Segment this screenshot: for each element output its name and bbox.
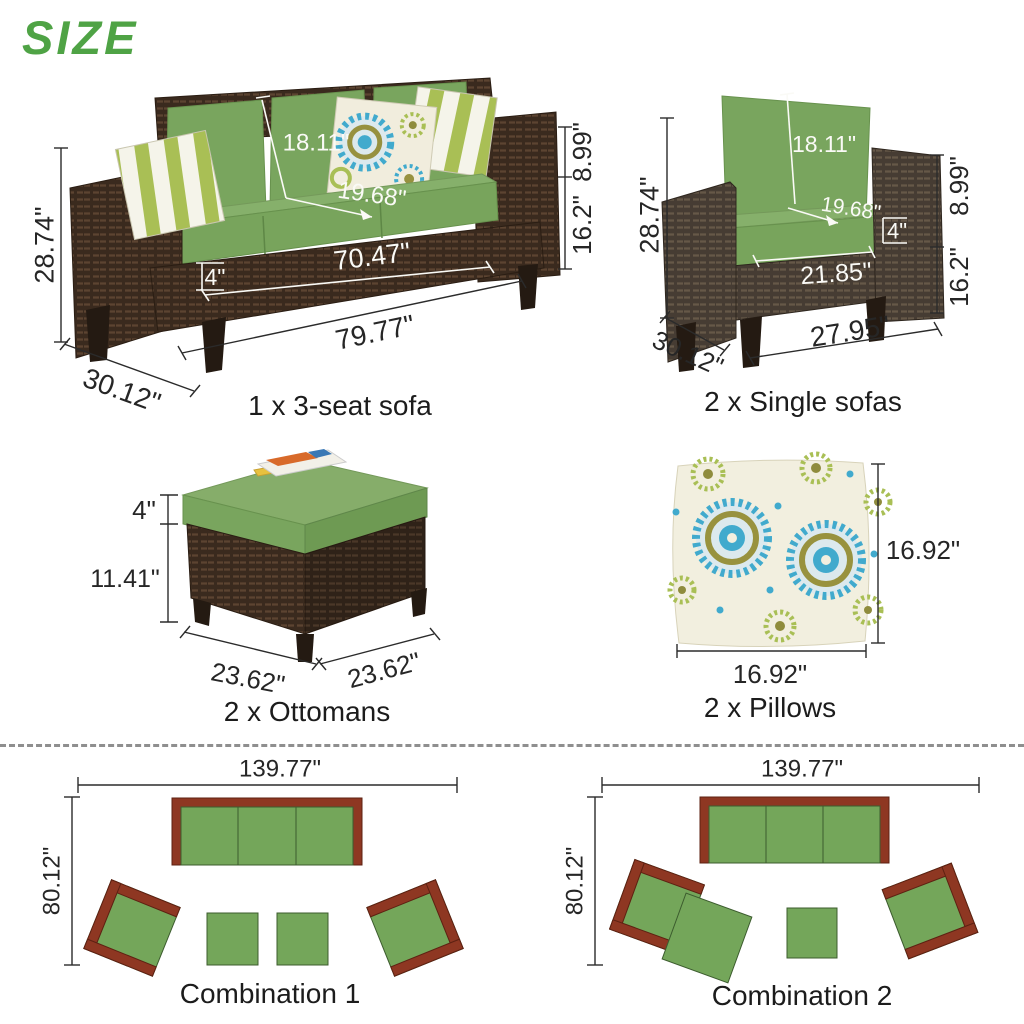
plan-chair-left	[84, 880, 180, 976]
combination2-plan: 139.77" 80.12"	[530, 755, 1020, 1015]
single-caption: 2 x Single sofas	[704, 386, 902, 418]
pillow-dim-height: 16.92"	[886, 535, 960, 565]
single-dim-back-cushion: 18.11"	[792, 131, 856, 157]
sofa-illustration	[70, 78, 560, 373]
combination1-plan: 139.77" 80.12"	[20, 755, 510, 1015]
sofa3-dim-total-width: 79.77"	[333, 309, 418, 356]
sofa3-dim-depth: 30.12"	[79, 362, 165, 418]
plan-sofa	[172, 798, 362, 865]
combination2-dim-width: 139.77"	[761, 755, 843, 782]
single-sofa-diagram: 18.11" 19.68" 4" 21.85" 28.74" 8.99"	[620, 70, 1010, 430]
plan-ottoman-center	[787, 908, 837, 958]
sofa3-dim-back-cushion: 18.11"	[283, 129, 350, 156]
plan-chair-right	[882, 863, 978, 959]
combination2-dim-depth: 80.12"	[561, 847, 588, 916]
sofa3-dim-arm-to-seat: 8.99"	[567, 122, 597, 182]
combination1-dim-width: 139.77"	[239, 755, 321, 782]
pillow-caption: 2 x Pillows	[704, 692, 836, 724]
ottoman-diagram: 4" 11.41" 23.62" 23.62"	[80, 440, 500, 740]
combination2-caption: Combination 2	[712, 980, 893, 1012]
ottoman-dim-cushion-thickness: 4"	[132, 495, 156, 525]
pillow-dim-width: 16.92"	[733, 659, 807, 689]
pillow-illustration	[670, 454, 890, 647]
single-dim-inner-width: 21.85"	[799, 257, 872, 290]
sofa3-dim-seat-height: 16.2"	[567, 195, 597, 255]
sofa3-dim-total-height: 28.74"	[29, 206, 59, 283]
sofa3-caption: 1 x 3-seat sofa	[248, 390, 432, 422]
ottoman-dim-width: 23.62"	[209, 656, 288, 700]
three-seat-sofa-diagram: 18.11" 19.68" 4" 70.47" 28.74"	[20, 70, 600, 430]
single-dim-arm-to-seat: 8.99"	[944, 156, 974, 216]
sofa3-dim-cushion-thickness: 4"	[205, 264, 226, 290]
section-divider	[0, 744, 1024, 747]
single-dim-total-height: 28.74"	[634, 176, 664, 253]
combination1-dim-depth: 80.12"	[38, 847, 65, 916]
single-dim-total-width: 27.95"	[808, 310, 892, 353]
plan-ottoman-2	[277, 913, 328, 965]
plan-chair-right	[367, 880, 463, 976]
plan-ottoman-1	[207, 913, 258, 965]
plan-sofa	[700, 797, 889, 863]
ottoman-illustration	[183, 449, 427, 662]
ottoman-dim-base-height: 11.41"	[90, 565, 160, 593]
striped-pillow-left	[115, 130, 224, 239]
page-title: SIZE	[22, 10, 138, 65]
single-dim-seat-height: 16.2"	[944, 247, 974, 307]
ottoman-caption: 2 x Ottomans	[224, 696, 391, 728]
ottoman-dim-depth: 23.62"	[344, 646, 424, 694]
single-dim-cushion-thickness: 4"	[887, 219, 907, 244]
combination1-caption: Combination 1	[180, 978, 361, 1010]
size-chart: SIZE	[0, 0, 1024, 1024]
